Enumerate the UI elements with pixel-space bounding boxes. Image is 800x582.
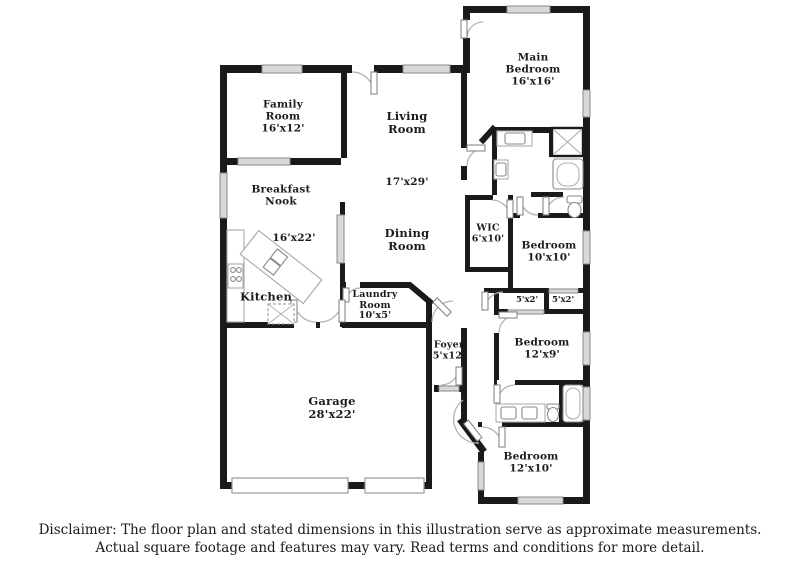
closet-label-left: 5'x2' — [516, 296, 538, 306]
room-label-bedroom-10x10: Bedroom 10'x10' — [522, 240, 577, 264]
garage-door-left — [232, 478, 348, 493]
disclaimer-line-2: Actual square footage and features may v… — [0, 539, 800, 557]
room-label-family-room: Family Room 16'x12' — [261, 99, 304, 134]
kitchen-counter — [227, 230, 244, 322]
room-label-wic: WIC 6'x10' — [472, 223, 505, 244]
disclaimer-line-1: Disclaimer: The floor plan and stated di… — [0, 521, 800, 539]
room-label-bedroom-12x9: Bedroom 12'x9' — [515, 337, 570, 361]
toilet — [547, 404, 559, 422]
vanity-sink — [494, 131, 532, 179]
room-label-main-bedroom: Main Bedroom 16'x16' — [506, 52, 561, 87]
garage-door-right — [365, 478, 424, 493]
floor-plan-drawing — [0, 0, 800, 582]
room-label-breakfast-nook: Breakfast Nook — [251, 184, 310, 208]
bathtub — [553, 159, 583, 189]
toilet — [567, 196, 582, 218]
room-label-bedroom-12x10: Bedroom 12'x10' — [504, 451, 559, 475]
shower — [552, 128, 583, 156]
room-dims-living-room: 17'x29' — [385, 177, 428, 189]
room-label-laundry-room: Laundry Room 10'x5' — [352, 290, 397, 322]
garage-doors — [232, 478, 424, 493]
stove — [228, 264, 243, 288]
floor-plan-page: Family Room 16'x12' Living Room 17'x29' … — [0, 0, 800, 582]
room-label-garage: Garage 28'x22' — [308, 395, 355, 421]
room-label-kitchen: Kitchen — [240, 291, 292, 304]
room-label-foyer: Foyer 5'x12' — [433, 340, 466, 361]
room-label-living-room: Living Room — [386, 110, 427, 136]
closet-label-right: 5'x2' — [552, 296, 574, 306]
room-label-dining-room: Dining Room — [385, 227, 430, 253]
bathtub — [563, 385, 583, 422]
double-vanity — [496, 404, 545, 422]
disclaimer-text: Disclaimer: The floor plan and stated di… — [0, 521, 800, 557]
room-dims-kitchen: 16'x22' — [272, 233, 315, 245]
hall-bathroom-fixtures — [496, 385, 583, 422]
pantry-closet — [268, 304, 294, 324]
